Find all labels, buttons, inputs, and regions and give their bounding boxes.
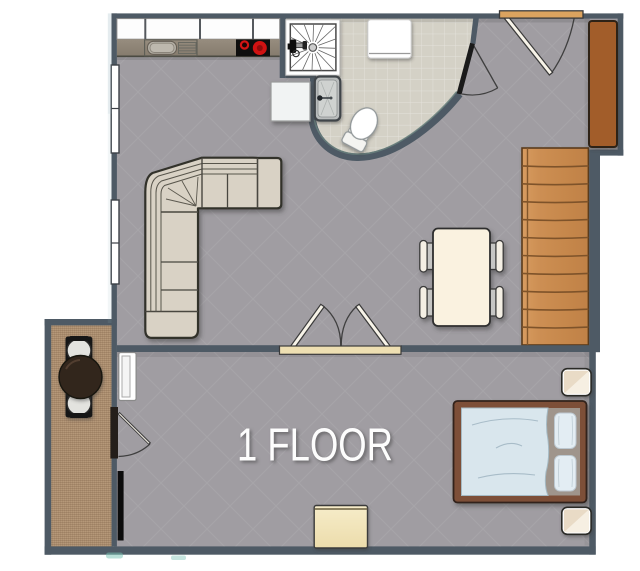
svg-text:1 FLOOR: 1 FLOOR xyxy=(237,419,393,471)
